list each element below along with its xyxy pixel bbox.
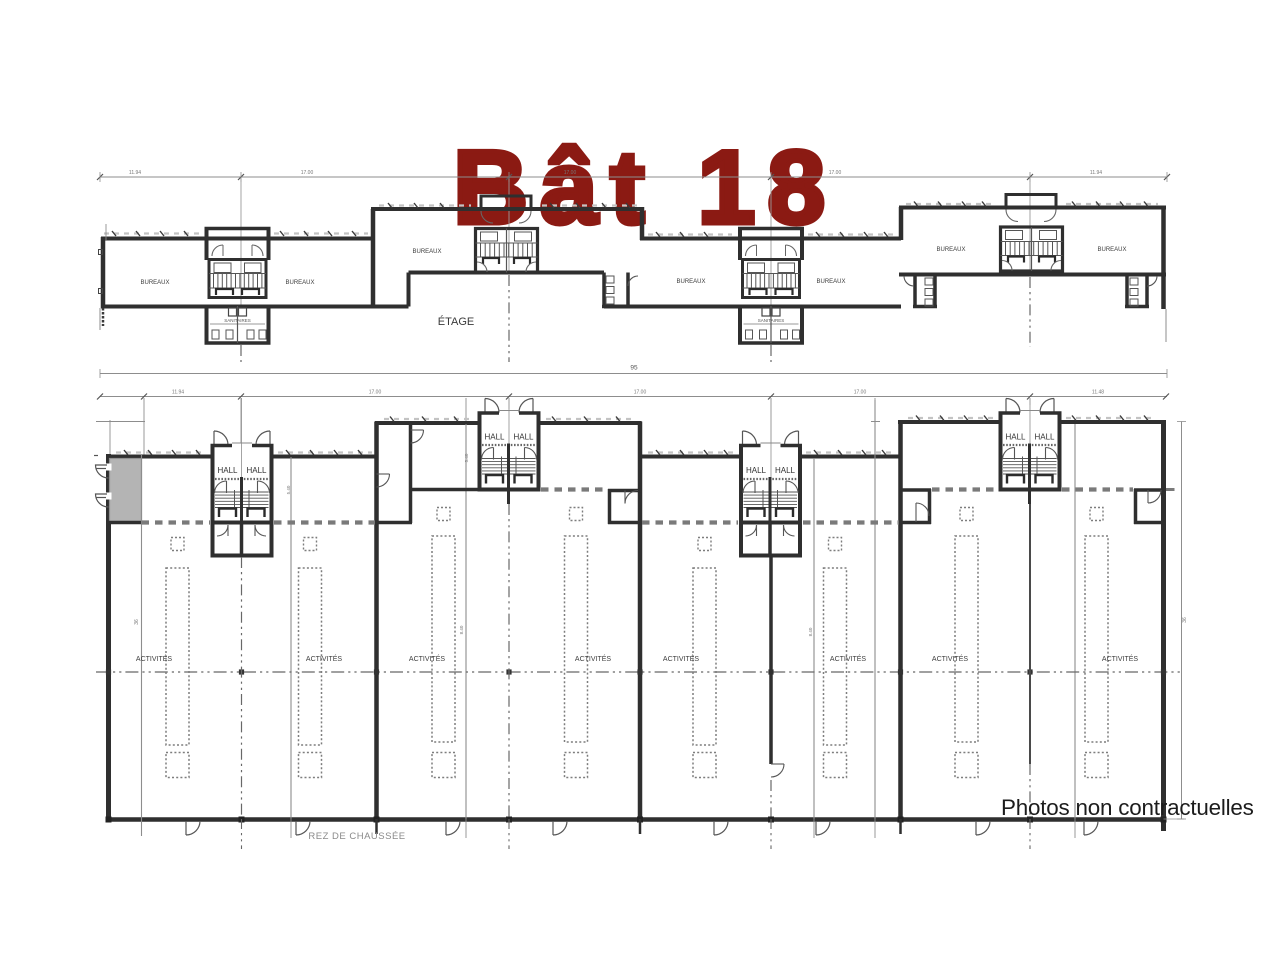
svg-text:BUREAUX: BUREAUX xyxy=(412,249,441,255)
svg-text:BUREAUX: BUREAUX xyxy=(676,279,705,285)
svg-text:8.40: 8.40 xyxy=(808,627,813,636)
svg-text:REZ DE CHAUSSÉE: REZ DE CHAUSSÉE xyxy=(308,831,405,842)
svg-text:11.48: 11.48 xyxy=(1092,390,1104,396)
svg-text:11.94: 11.94 xyxy=(129,170,141,176)
svg-text:BUREAUX: BUREAUX xyxy=(936,247,965,253)
svg-text:ACTIVITÉS: ACTIVITÉS xyxy=(1102,654,1139,663)
svg-text:11.94: 11.94 xyxy=(172,390,184,396)
svg-text:BUREAUX: BUREAUX xyxy=(285,280,314,286)
svg-text:BUREAUX: BUREAUX xyxy=(816,279,845,285)
svg-text:17.00: 17.00 xyxy=(369,390,382,396)
svg-text:17.00: 17.00 xyxy=(301,170,314,176)
svg-text:17.00: 17.00 xyxy=(564,170,577,176)
svg-text:5.40: 5.40 xyxy=(464,453,469,462)
svg-text:17.00: 17.00 xyxy=(854,390,867,396)
svg-text:17.00: 17.00 xyxy=(829,170,842,176)
svg-text:36: 36 xyxy=(1182,617,1188,623)
svg-text:17.00: 17.00 xyxy=(634,390,647,396)
svg-text:8.40: 8.40 xyxy=(459,625,464,634)
svg-text:ACTIVITÉS: ACTIVITÉS xyxy=(932,654,969,663)
svg-text:ACTIVITÉS: ACTIVITÉS xyxy=(409,654,446,663)
svg-text:ACTIVITÉS: ACTIVITÉS xyxy=(136,654,173,663)
svg-text:11.94: 11.94 xyxy=(1090,170,1102,176)
svg-text:ACTIVITÉS: ACTIVITÉS xyxy=(830,654,867,663)
svg-text:ACTIVITÉS: ACTIVITÉS xyxy=(663,654,700,663)
svg-text:36: 36 xyxy=(134,619,140,625)
svg-text:ÉTAGE: ÉTAGE xyxy=(438,315,474,328)
svg-text:5.40: 5.40 xyxy=(286,485,291,494)
svg-text:BUREAUX: BUREAUX xyxy=(1097,247,1126,253)
svg-text:95: 95 xyxy=(630,365,638,372)
svg-text:ACTIVITÉS: ACTIVITÉS xyxy=(306,654,343,663)
svg-text:ACTIVITÉS: ACTIVITÉS xyxy=(575,654,612,663)
svg-text:BUREAUX: BUREAUX xyxy=(140,280,169,286)
svg-text:Photos non contractuelles: Photos non contractuelles xyxy=(1001,795,1254,820)
